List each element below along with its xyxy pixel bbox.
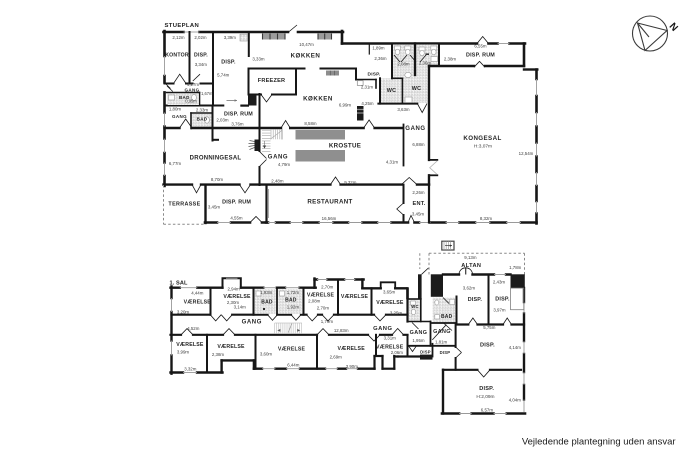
svg-text:3,31m: 3,31m <box>384 336 397 341</box>
svg-text:2,38m: 2,38m <box>444 57 457 62</box>
svg-text:1,72m: 1,72m <box>287 290 300 295</box>
svg-text:3,65m: 3,65m <box>383 290 396 295</box>
svg-text:8,70m: 8,70m <box>211 177 224 182</box>
svg-text:KØKKEN: KØKKEN <box>291 53 321 60</box>
svg-text:DISP.: DISP. <box>468 297 483 303</box>
svg-text:1,89m: 1,89m <box>372 46 385 51</box>
svg-text:6,55m: 6,55m <box>474 44 487 49</box>
svg-text:DISP. RUM: DISP. RUM <box>466 53 495 59</box>
svg-text:WC: WC <box>411 304 418 309</box>
svg-text:3,76m: 3,76m <box>231 122 244 127</box>
svg-text:4,31m: 4,31m <box>386 159 399 164</box>
svg-text:6,57m: 6,57m <box>481 408 494 413</box>
svg-text:10,47m: 10,47m <box>299 42 314 47</box>
svg-text:DISP.: DISP. <box>480 343 495 349</box>
svg-text:4,52m: 4,52m <box>187 326 200 331</box>
svg-text:TERRASSE: TERRASSE <box>168 202 200 208</box>
svg-text:BAD: BAD <box>261 299 273 305</box>
svg-text:2,69m: 2,69m <box>330 355 343 360</box>
svg-text:4,25m: 4,25m <box>361 101 374 106</box>
svg-text:3,99m: 3,99m <box>177 349 190 354</box>
svg-text:12,54m: 12,54m <box>519 151 534 156</box>
svg-text:KONGESAL: KONGESAL <box>463 135 501 142</box>
svg-text:2,12m: 2,12m <box>172 35 185 40</box>
svg-text:3,32m: 3,32m <box>184 367 197 372</box>
svg-text:3,34m: 3,34m <box>195 62 208 67</box>
svg-text:2,08m: 2,08m <box>397 62 410 67</box>
svg-text:3,90m: 3,90m <box>346 364 359 369</box>
svg-text:3,60m: 3,60m <box>260 351 273 356</box>
svg-text:GANG: GANG <box>410 330 428 336</box>
svg-text:3,25m: 3,25m <box>390 311 403 316</box>
svg-text:DISP: DISP <box>440 350 451 355</box>
svg-text:GANG: GANG <box>433 329 451 335</box>
svg-text:GANG: GANG <box>185 87 200 92</box>
svg-text:STUEPLAN: STUEPLAN <box>165 23 200 29</box>
svg-text:DRONNINGESAL: DRONNINGESAL <box>190 155 242 161</box>
svg-text:2,36m: 2,36m <box>419 61 432 66</box>
svg-text:ALTAN: ALTAN <box>461 263 481 269</box>
svg-text:KROSTUE: KROSTUE <box>329 143 361 150</box>
svg-text:1,79m: 1,79m <box>321 319 334 324</box>
svg-text:9,13m: 9,13m <box>464 255 477 260</box>
svg-text:2,08m: 2,08m <box>308 299 321 304</box>
svg-text:16,56m: 16,56m <box>322 216 337 221</box>
svg-text:12,83m: 12,83m <box>334 328 349 333</box>
svg-text:KONTOR: KONTOR <box>165 53 189 59</box>
svg-text:VÆRELSE: VÆRELSE <box>341 294 369 300</box>
svg-text:WC: WC <box>412 86 421 92</box>
svg-text:H:3,07m: H:3,07m <box>474 143 492 149</box>
svg-text:1,67m: 1,67m <box>201 91 213 96</box>
svg-text:VÆRELSE: VÆRELSE <box>223 294 251 300</box>
svg-text:2,31m: 2,31m <box>361 84 374 89</box>
svg-text:4,04m: 4,04m <box>509 398 522 403</box>
svg-text:3,14m: 3,14m <box>234 304 247 309</box>
svg-text:VÆRELSE: VÆRELSE <box>338 346 366 352</box>
svg-text:2,43m: 2,43m <box>493 279 506 284</box>
svg-text:2,94m: 2,94m <box>227 286 240 291</box>
svg-text:H:2,09m: H:2,09m <box>476 394 494 400</box>
svg-text:VÆRELSE: VÆRELSE <box>278 347 306 353</box>
svg-text:BAD: BAD <box>441 314 453 320</box>
svg-text:1,80m: 1,80m <box>169 106 182 111</box>
svg-text:2,33m: 2,33m <box>196 107 209 112</box>
svg-text:3,33m: 3,33m <box>252 56 265 61</box>
svg-text:6,77m: 6,77m <box>169 161 182 166</box>
svg-text:2,38m: 2,38m <box>212 352 225 357</box>
svg-text:1,95m: 1,95m <box>412 338 425 343</box>
svg-text:2,06m: 2,06m <box>391 350 404 355</box>
svg-text:1,93m: 1,93m <box>260 290 273 295</box>
svg-text:2,26m: 2,26m <box>412 190 425 195</box>
svg-text:GANG: GANG <box>268 155 288 161</box>
svg-text:3,97m: 3,97m <box>493 307 506 312</box>
svg-text:1,92m: 1,92m <box>287 304 300 309</box>
svg-text:GANG: GANG <box>242 320 262 326</box>
svg-text:1,81m: 1,81m <box>435 340 448 345</box>
svg-text:3,45m: 3,45m <box>208 204 221 209</box>
svg-text:FREEZER: FREEZER <box>258 78 286 84</box>
svg-text:3,62m: 3,62m <box>463 285 476 290</box>
svg-text:3,20m: 3,20m <box>177 310 190 315</box>
svg-text:KØKKEN: KØKKEN <box>303 96 333 103</box>
svg-text:0,95m: 0,95m <box>185 99 197 104</box>
svg-text:6,99m: 6,99m <box>339 103 352 108</box>
svg-text:2,70m: 2,70m <box>317 306 330 311</box>
svg-text:6,88m: 6,88m <box>412 142 425 147</box>
svg-text:VÆRELSE: VÆRELSE <box>217 344 245 350</box>
svg-text:DISP.: DISP. <box>368 72 381 78</box>
svg-text:VÆRELSE: VÆRELSE <box>184 299 212 305</box>
svg-text:DISP.: DISP. <box>221 60 236 66</box>
svg-text:GANG: GANG <box>405 126 425 132</box>
svg-text:DISP: DISP <box>420 350 431 355</box>
svg-text:DISP.: DISP. <box>495 296 510 302</box>
svg-text:4,79m: 4,79m <box>278 162 291 167</box>
svg-text:RESTAURANT: RESTAURANT <box>307 199 352 206</box>
svg-text:VÆRELSE: VÆRELSE <box>176 342 204 348</box>
svg-text:DISP. RUM: DISP. RUM <box>222 200 251 206</box>
svg-text:9,32m: 9,32m <box>344 180 357 185</box>
svg-text:GANG: GANG <box>172 114 187 119</box>
svg-text:6,44m: 6,44m <box>287 363 300 368</box>
svg-text:4,14m: 4,14m <box>509 345 522 350</box>
svg-text:Vejledende plantegning uden an: Vejledende plantegning uden ansvar <box>522 437 676 448</box>
svg-text:4,44m: 4,44m <box>191 291 204 296</box>
svg-text:WC: WC <box>387 88 396 94</box>
svg-text:2,03m: 2,03m <box>216 117 229 122</box>
svg-text:3,63m: 3,63m <box>397 107 410 112</box>
svg-text:3,39m: 3,39m <box>224 35 237 40</box>
svg-text:8,32m: 8,32m <box>480 216 493 221</box>
svg-text:DISP.: DISP. <box>194 53 208 59</box>
svg-text:ENT.: ENT. <box>413 201 426 207</box>
svg-text:GANG: GANG <box>373 326 392 332</box>
svg-text:5,74m: 5,74m <box>217 72 230 77</box>
svg-text:VÆRELSE: VÆRELSE <box>376 300 404 306</box>
svg-text:BAD: BAD <box>285 297 297 303</box>
svg-text:8,58m: 8,58m <box>304 121 317 126</box>
svg-text:3,45m: 3,45m <box>412 212 425 217</box>
svg-text:4,55m: 4,55m <box>230 216 243 221</box>
svg-text:DISP.: DISP. <box>479 386 494 392</box>
svg-text:5,75m: 5,75m <box>483 325 496 330</box>
svg-text:1,78m: 1,78m <box>509 265 522 270</box>
svg-text:2,70m: 2,70m <box>321 285 334 290</box>
svg-text:2,02m: 2,02m <box>194 35 207 40</box>
svg-text:2,36m: 2,36m <box>374 56 387 61</box>
svg-text:2,48m: 2,48m <box>271 179 284 184</box>
svg-text:BAD: BAD <box>197 116 208 121</box>
